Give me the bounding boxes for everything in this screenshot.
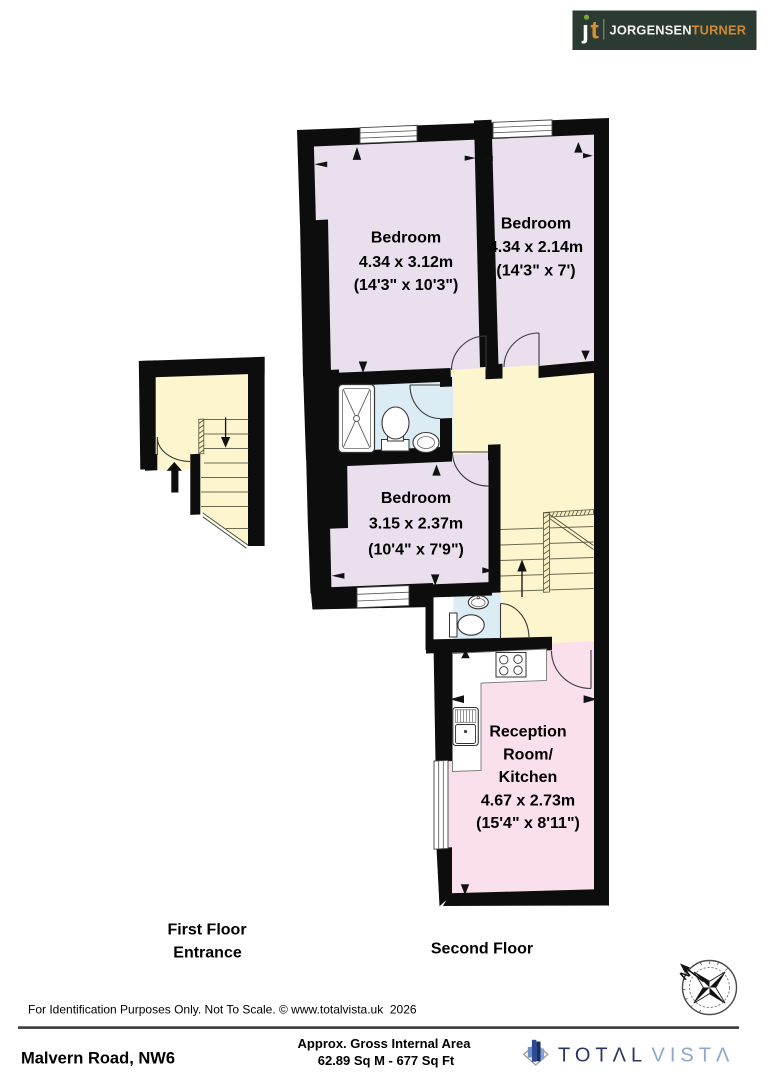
- svg-text:VISTΛ: VISTΛ: [652, 1045, 735, 1067]
- svg-text:Reception: Reception: [489, 724, 566, 741]
- svg-text:3.15 x 2.37m: 3.15 x 2.37m: [369, 516, 463, 533]
- svg-text:Approx. Gross Internal Area: Approx. Gross Internal Area: [298, 1036, 472, 1051]
- svg-text:Room/: Room/: [503, 746, 553, 763]
- svg-text:4.34 x 3.12m: 4.34 x 3.12m: [359, 254, 453, 271]
- svg-text:4.67 x 2.73m: 4.67 x 2.73m: [481, 793, 575, 810]
- svg-text:62.89 Sq M - 677 Sq Ft: 62.89 Sq M - 677 Sq Ft: [318, 1053, 455, 1068]
- svg-text:Bedroom: Bedroom: [371, 230, 441, 247]
- svg-text:Bedroom: Bedroom: [381, 490, 451, 507]
- svg-text:(14'3" x 10'3"): (14'3" x 10'3"): [354, 277, 459, 294]
- svg-text:JORGENSENTURNER: JORGENSENTURNER: [610, 23, 747, 38]
- svg-text:First Floor: First Floor: [167, 922, 246, 939]
- svg-text:(10'4" x 7'9"): (10'4" x 7'9"): [368, 542, 464, 559]
- svg-text:TOTΛL: TOTΛL: [558, 1045, 647, 1067]
- svg-text:ȷ: ȷ: [581, 17, 589, 45]
- svg-text:Second Floor: Second Floor: [431, 941, 533, 958]
- svg-text:Bedroom: Bedroom: [501, 216, 571, 233]
- svg-text:Malvern Road, NW6: Malvern Road, NW6: [21, 1050, 175, 1068]
- svg-text:(15'4" x 8'11"): (15'4" x 8'11"): [476, 815, 580, 832]
- svg-text:4.34 x 2.14m: 4.34 x 2.14m: [489, 239, 583, 256]
- svg-text:(14'3" x 7'): (14'3" x 7'): [496, 263, 575, 280]
- svg-text:Kitchen: Kitchen: [499, 769, 558, 786]
- svg-text:For Identification Purposes On: For Identification Purposes Only. Not To…: [28, 1003, 417, 1017]
- svg-text:t: t: [591, 17, 600, 45]
- svg-text:Entrance: Entrance: [173, 945, 242, 962]
